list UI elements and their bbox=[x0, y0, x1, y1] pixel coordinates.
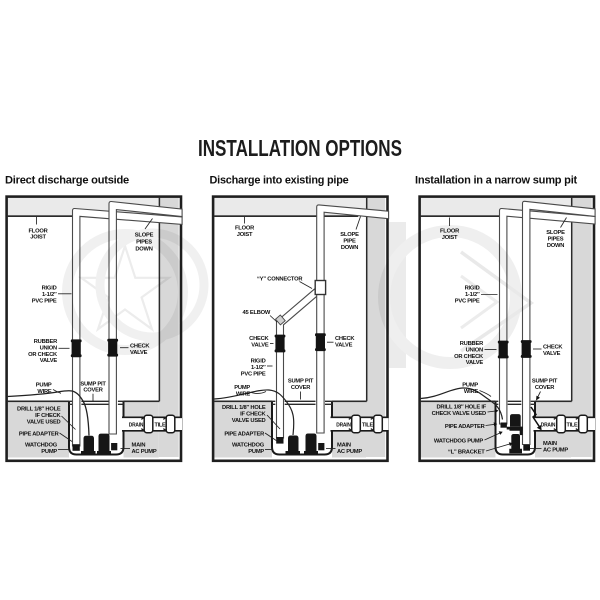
svg-text:Direct discharge outside: Direct discharge outside bbox=[5, 175, 129, 187]
svg-text:DRAIN: DRAIN bbox=[336, 422, 351, 428]
svg-text:TILE: TILE bbox=[567, 422, 579, 428]
svg-text:FLOORJOIST: FLOORJOIST bbox=[235, 226, 255, 238]
svg-text:“Y” CONNECTOR: “Y” CONNECTOR bbox=[257, 277, 303, 283]
svg-text:INSTALLATION OPTIONS: INSTALLATION OPTIONS bbox=[198, 135, 402, 161]
svg-text:DRAIN: DRAIN bbox=[541, 422, 556, 428]
svg-text:FLOORJOIST: FLOORJOIST bbox=[28, 228, 48, 240]
svg-text:“L” BRACKET: “L” BRACKET bbox=[448, 450, 485, 456]
svg-text:SUMP PITCOVER: SUMP PITCOVER bbox=[532, 379, 558, 391]
svg-text:PUMPWIRE: PUMPWIRE bbox=[36, 383, 52, 395]
svg-text:PUMPWIRE: PUMPWIRE bbox=[234, 385, 250, 397]
svg-text:PUMPWIRE: PUMPWIRE bbox=[462, 383, 478, 395]
svg-text:SUMP PITCOVER: SUMP PITCOVER bbox=[80, 381, 106, 393]
svg-text:DRILL 1/8″ HOLE IFCHECK VALVE: DRILL 1/8″ HOLE IFCHECK VALVE USED bbox=[432, 405, 487, 417]
svg-text:45 ELBOW: 45 ELBOW bbox=[243, 310, 271, 316]
svg-text:Discharge into existing pipe: Discharge into existing pipe bbox=[210, 175, 349, 187]
svg-text:TILE: TILE bbox=[155, 422, 167, 428]
svg-text:WATCHDOG PUMP: WATCHDOG PUMP bbox=[434, 439, 483, 445]
svg-text:Installation in a narrow sump: Installation in a narrow sump pit bbox=[415, 175, 578, 187]
svg-text:TILE: TILE bbox=[362, 422, 374, 428]
svg-text:SLOPEPIPESDOWN: SLOPEPIPESDOWN bbox=[546, 230, 565, 249]
svg-text:SUMP PITCOVER: SUMP PITCOVER bbox=[288, 379, 314, 391]
svg-text:PIPE ADAPTER: PIPE ADAPTER bbox=[19, 432, 60, 438]
svg-text:PIPE ADAPTER: PIPE ADAPTER bbox=[224, 432, 265, 438]
svg-text:CHECKVALVE: CHECKVALVE bbox=[249, 336, 269, 348]
svg-text:DRAIN: DRAIN bbox=[129, 422, 144, 428]
svg-text:PIPE ADAPTER: PIPE ADAPTER bbox=[445, 424, 486, 430]
